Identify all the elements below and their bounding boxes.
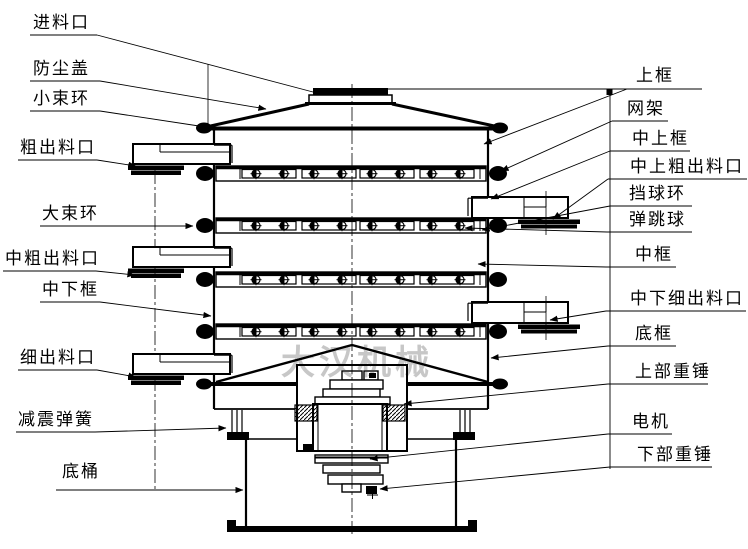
label-upper-frame: 上框 — [636, 66, 674, 86]
label-lower-weight: 下部重锤 — [637, 445, 713, 465]
label-dust-cover: 防尘盖 — [33, 59, 90, 79]
label-base-barrel: 底桶 — [62, 462, 100, 482]
lower-weight — [315, 455, 388, 499]
label-mesh-frame: 网架 — [627, 99, 665, 119]
screen-deck-rows — [196, 166, 507, 339]
diagram-canvas: 进料口 防尘盖 小束环 粗出料口 大束环 中粗出料口 中下框 细出料口 减震弹簧… — [0, 0, 748, 549]
label-mid-lower-fine-outlet: 中下细出料口 — [630, 289, 744, 309]
label-motor: 电机 — [632, 412, 670, 432]
label-mid-upper-frame: 中上框 — [632, 129, 689, 149]
dust-cover — [206, 104, 499, 127]
label-mid-lower-frame: 中下框 — [42, 280, 99, 300]
label-mid-coarse-outlet: 中粗出料口 — [5, 249, 100, 269]
label-bottom-frame: 底框 — [635, 324, 673, 344]
watermark: 大汉机械 — [281, 335, 433, 384]
motor-assembly — [295, 365, 407, 499]
label-middle-frame: 中框 — [635, 245, 673, 265]
label-upper-weight: 上部重锤 — [635, 362, 711, 382]
label-bouncing-ball: 弹跳球 — [629, 210, 686, 230]
label-damping-spring: 减震弹簧 — [18, 410, 94, 430]
label-fine-outlet: 细出料口 — [20, 348, 96, 368]
label-large-clamp-ring: 大束环 — [42, 204, 99, 224]
fine-outlet — [128, 354, 232, 385]
feed-inlet — [305, 88, 396, 104]
label-mid-upper-coarse-outlet: 中上粗出料口 — [630, 157, 744, 177]
label-coarse-outlet: 粗出料口 — [20, 138, 96, 158]
label-ball-stop-ring: 挡球环 — [629, 184, 686, 204]
label-feed-inlet: 进料口 — [33, 13, 90, 33]
label-small-clamp-ring: 小束环 — [33, 89, 90, 109]
